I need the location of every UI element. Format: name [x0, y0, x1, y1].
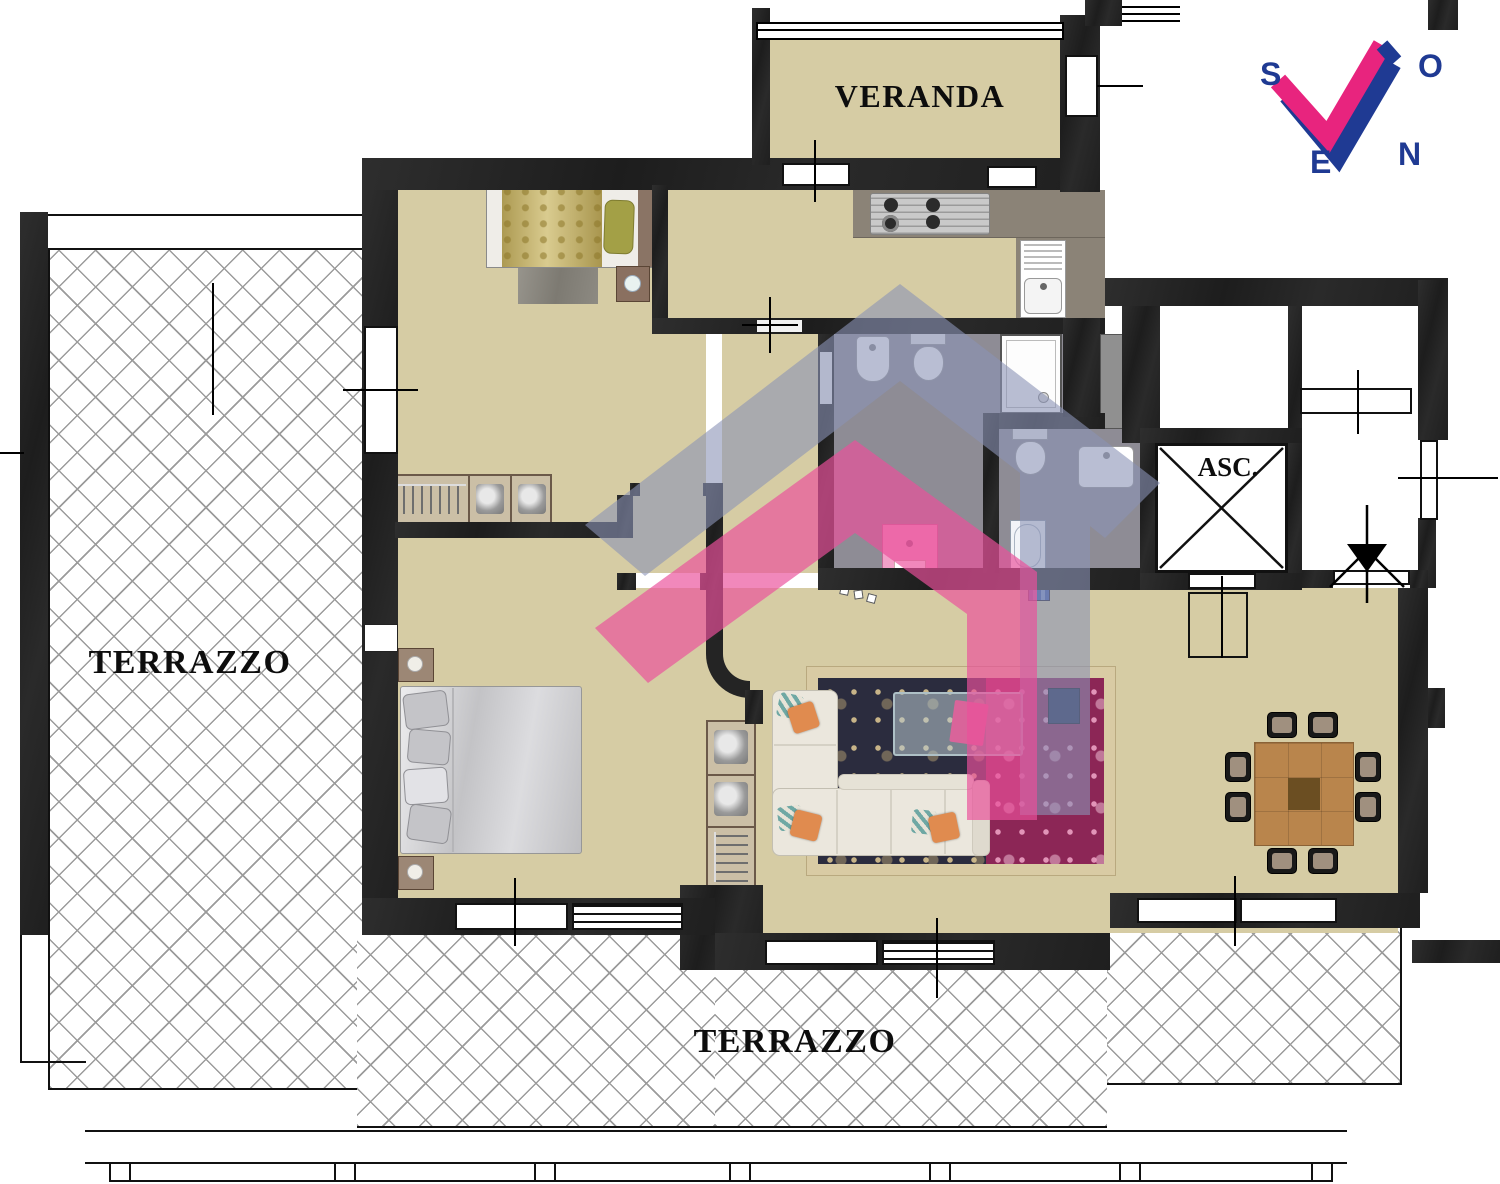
- door-opening: [757, 320, 802, 332]
- dimension-tick: [0, 452, 24, 454]
- wall: [1105, 278, 1448, 306]
- bed-pillow: [407, 728, 452, 766]
- dimension-tick: [343, 389, 418, 391]
- nightstand-lamp: [407, 656, 423, 672]
- dimension-tick: [212, 283, 214, 415]
- terrace-boundary-line: [20, 1061, 86, 1063]
- wall: [652, 318, 1105, 334]
- orange-cushion: [927, 811, 960, 843]
- dimension-tick: [1221, 576, 1223, 658]
- toilet-bowl: [1015, 441, 1046, 475]
- folded-clothes: [714, 782, 748, 816]
- shelf-divider: [708, 774, 754, 776]
- terrace-boundary-line: [20, 935, 22, 1063]
- dimension-tick: [814, 140, 816, 202]
- folded-clothes: [476, 484, 504, 514]
- elevator-cabin: ASC.: [1155, 443, 1288, 573]
- terrace-boundary-line: [22, 214, 362, 216]
- single-bed-headboard: [638, 187, 652, 267]
- dining-chair: [1355, 792, 1381, 822]
- double-bed-fold: [452, 688, 454, 852]
- veranda-glazing: [1122, 6, 1180, 22]
- nightstand-lamp: [624, 275, 641, 292]
- sofa-seam: [890, 790, 892, 854]
- parapet-post: [534, 1162, 556, 1182]
- kitchen-sink-drainer: [1024, 244, 1062, 274]
- floor-plan: ASC. VERANDA TERRAZZO TERRAZZO S O E N: [0, 0, 1500, 1184]
- wall: [1140, 443, 1155, 590]
- single-bed-blanket: [502, 187, 602, 267]
- dining-chair: [1308, 848, 1338, 874]
- wardrobe-divider: [468, 476, 470, 522]
- window: [987, 166, 1037, 188]
- room-label-veranda: VERANDA: [790, 78, 1050, 115]
- stair-landing-window: [1300, 388, 1412, 414]
- dining-chair: [1225, 752, 1251, 782]
- shelf-divider: [708, 826, 754, 828]
- wall: [1418, 280, 1448, 440]
- dining-chair: [1267, 712, 1297, 738]
- sofa-seam: [774, 744, 836, 746]
- parapet-post: [109, 1162, 131, 1182]
- elevator-label: ASC.: [1188, 452, 1268, 483]
- dining-chair: [1355, 752, 1381, 782]
- wall: [1063, 318, 1100, 417]
- corridor-floor: [722, 334, 818, 573]
- wall: [983, 413, 999, 573]
- bed-pillow: [402, 689, 450, 730]
- wardrobe-divider: [510, 476, 512, 522]
- wall: [1398, 588, 1428, 893]
- shelf-hangers: [714, 832, 748, 882]
- nightstand-lamp: [407, 864, 423, 880]
- faucet-icon: [906, 540, 913, 547]
- door-opening: [364, 624, 398, 652]
- wall: [706, 483, 723, 644]
- dimension-tick: [514, 878, 516, 946]
- dining-chair: [1225, 792, 1251, 822]
- bidet: [856, 336, 890, 382]
- bed-pillow: [406, 803, 453, 844]
- sofa-seam: [836, 790, 838, 854]
- window: [1065, 55, 1098, 117]
- wall: [630, 483, 640, 496]
- wall: [652, 185, 668, 334]
- wall: [1412, 940, 1500, 963]
- shuttered-window: [572, 903, 683, 930]
- dining-chair: [1267, 848, 1297, 874]
- bedroom1-floor: [652, 334, 706, 495]
- wall: [1122, 306, 1160, 443]
- parapet: [85, 1130, 1347, 1164]
- folded-clothes: [714, 730, 748, 764]
- magazine: [949, 700, 989, 746]
- burner-icon: [884, 198, 898, 212]
- dimension-tick: [1097, 85, 1143, 87]
- bathtub-inner: [1014, 524, 1041, 568]
- wall: [1288, 443, 1302, 590]
- faucet-icon: [869, 344, 876, 351]
- wall: [1428, 688, 1445, 728]
- window: [1240, 898, 1337, 923]
- dimension-tick: [742, 324, 798, 326]
- parapet-line: [110, 1180, 1332, 1182]
- shower-drain-icon: [1038, 392, 1049, 403]
- veranda-glazing: [756, 22, 1064, 40]
- room-label-terrace-bottom: TERRAZZO: [675, 1023, 915, 1061]
- toilet-bowl: [913, 346, 944, 381]
- hall-fixture: [853, 589, 863, 599]
- wall: [395, 522, 633, 538]
- door-opening: [820, 352, 832, 404]
- terrace-bottom-right-tiles: [1107, 925, 1402, 1085]
- compass-icon: S O E N: [1230, 15, 1480, 205]
- dining-table-center: [1288, 778, 1320, 810]
- burner-icon: [926, 198, 940, 212]
- compass-letter-s: S: [1260, 56, 1281, 92]
- bed-pillow: [403, 767, 449, 806]
- folded-clothes: [518, 484, 546, 514]
- shuttered-window: [882, 940, 995, 965]
- dimension-tick: [1357, 370, 1359, 434]
- parapet-post: [334, 1162, 356, 1182]
- room-label-terrace-left: TERRAZZO: [80, 644, 300, 682]
- wall: [20, 212, 48, 935]
- dimension-tick: [936, 918, 938, 998]
- wall: [362, 190, 398, 935]
- single-bed-pillow: [603, 199, 635, 254]
- window: [765, 940, 878, 965]
- wall: [617, 573, 636, 590]
- burner-icon: [926, 215, 940, 229]
- window: [782, 163, 850, 186]
- faucet-icon: [1103, 452, 1110, 459]
- hall-storage-outline: [1188, 592, 1248, 658]
- burner-icon: [882, 215, 899, 232]
- wall: [617, 495, 633, 538]
- terrace-bottom-tiles: [357, 935, 715, 1128]
- compass-letter-n: N: [1398, 136, 1421, 172]
- window: [1137, 898, 1237, 923]
- bedside-rug: [518, 268, 598, 304]
- compass-letter-o: O: [1418, 48, 1443, 84]
- parapet-post: [1311, 1162, 1333, 1182]
- faucet-icon: [1040, 283, 1047, 290]
- parapet-post: [1119, 1162, 1141, 1182]
- dimension-tick: [1234, 876, 1236, 946]
- window: [455, 903, 568, 930]
- parapet-post: [929, 1162, 951, 1182]
- wall: [1085, 0, 1122, 26]
- wardrobe-hangers: [394, 484, 466, 514]
- wall: [1140, 428, 1302, 443]
- wall: [745, 690, 763, 724]
- dimension-tick: [1398, 477, 1498, 479]
- parapet-post: [729, 1162, 751, 1182]
- entrance-arrow-icon: [1320, 495, 1440, 615]
- sofa-arm: [972, 780, 990, 856]
- compass-letter-e: E: [1310, 144, 1331, 180]
- wall: [700, 573, 723, 590]
- tv: [1048, 688, 1080, 724]
- dining-chair: [1308, 712, 1338, 738]
- sofa-back: [838, 774, 974, 790]
